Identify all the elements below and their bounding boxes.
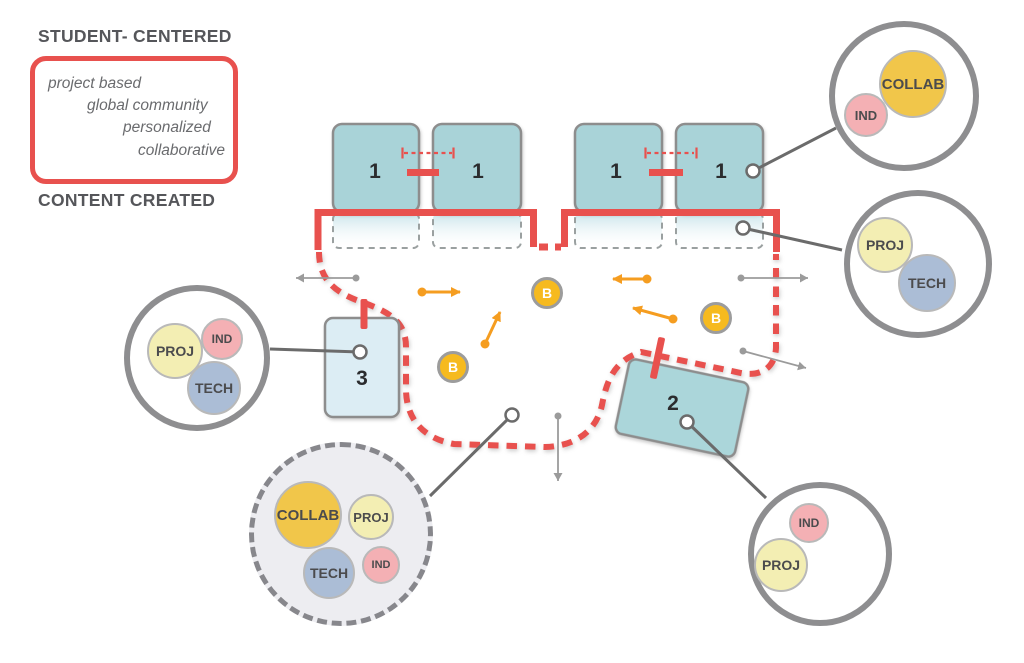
bubble-ind: IND [844, 93, 888, 137]
room-label-2: 2 [660, 391, 686, 417]
room-label-1: 1 [465, 159, 491, 185]
bubble-collab: COLLAB [274, 481, 342, 549]
orange-arrow-dot [669, 315, 678, 324]
callout-anchor-dot [747, 165, 760, 178]
room-connector-bar [649, 169, 683, 176]
annotation-circle-ind-proj: IND PROJ [748, 482, 892, 626]
bubble-tech: TECH [303, 547, 355, 599]
bubble-ind: IND [201, 318, 243, 360]
bubble-ind: IND [789, 503, 829, 543]
diagram-canvas: STUDENT- CENTERED project based global c… [0, 0, 1024, 663]
gray-arrow-dot [740, 348, 747, 355]
bubble-tech: TECH [898, 254, 956, 312]
annotation-circle-proj-ind-tech: PROJ IND TECH [124, 285, 270, 431]
callout-line [753, 128, 836, 171]
room-label-1: 1 [362, 159, 388, 185]
classroom-extensions [333, 213, 763, 248]
orange-arrow-dot [418, 288, 427, 297]
orange-flow-arrow [485, 312, 500, 344]
classroom-rooms [333, 124, 763, 212]
bubble-proj: PROJ [754, 538, 808, 592]
b-marker: B [531, 277, 563, 309]
bubble-ind: IND [362, 546, 400, 584]
room-label-3: 3 [349, 366, 375, 392]
room-label-1: 1 [708, 159, 734, 185]
classroom-extension [575, 213, 662, 248]
annotation-circle-collab-ind: COLLAB IND [829, 21, 979, 171]
orange-arrow-dot [643, 275, 652, 284]
b-marker: B [437, 351, 469, 383]
gray-arrow-dot [738, 275, 745, 282]
classroom-extension [333, 213, 419, 248]
callout-anchor-dot [506, 409, 519, 422]
orange-arrow-dot [481, 340, 490, 349]
callout-anchor-dot [737, 222, 750, 235]
bubble-tech: TECH [187, 361, 241, 415]
bubble-collab: COLLAB [879, 50, 947, 118]
b-marker: B [700, 302, 732, 334]
bubble-proj: PROJ [348, 494, 394, 540]
annotation-circle-proj-tech: PROJ TECH [844, 190, 992, 338]
gray-arrow-dot [555, 413, 562, 420]
callout-anchor-dot [354, 346, 367, 359]
gray-flow-arrow [743, 351, 806, 368]
entry-tick-room3 [361, 299, 368, 329]
callout-anchor-dot [681, 416, 694, 429]
annotation-circle-commons: COLLAB PROJ TECH IND [249, 442, 433, 626]
callout-line [430, 415, 512, 496]
orange-flow-arrow [633, 308, 673, 319]
gray-arrow-dot [353, 275, 360, 282]
room-connector-bar [407, 169, 439, 176]
classroom-extension [433, 213, 521, 248]
room-label-1: 1 [603, 159, 629, 185]
